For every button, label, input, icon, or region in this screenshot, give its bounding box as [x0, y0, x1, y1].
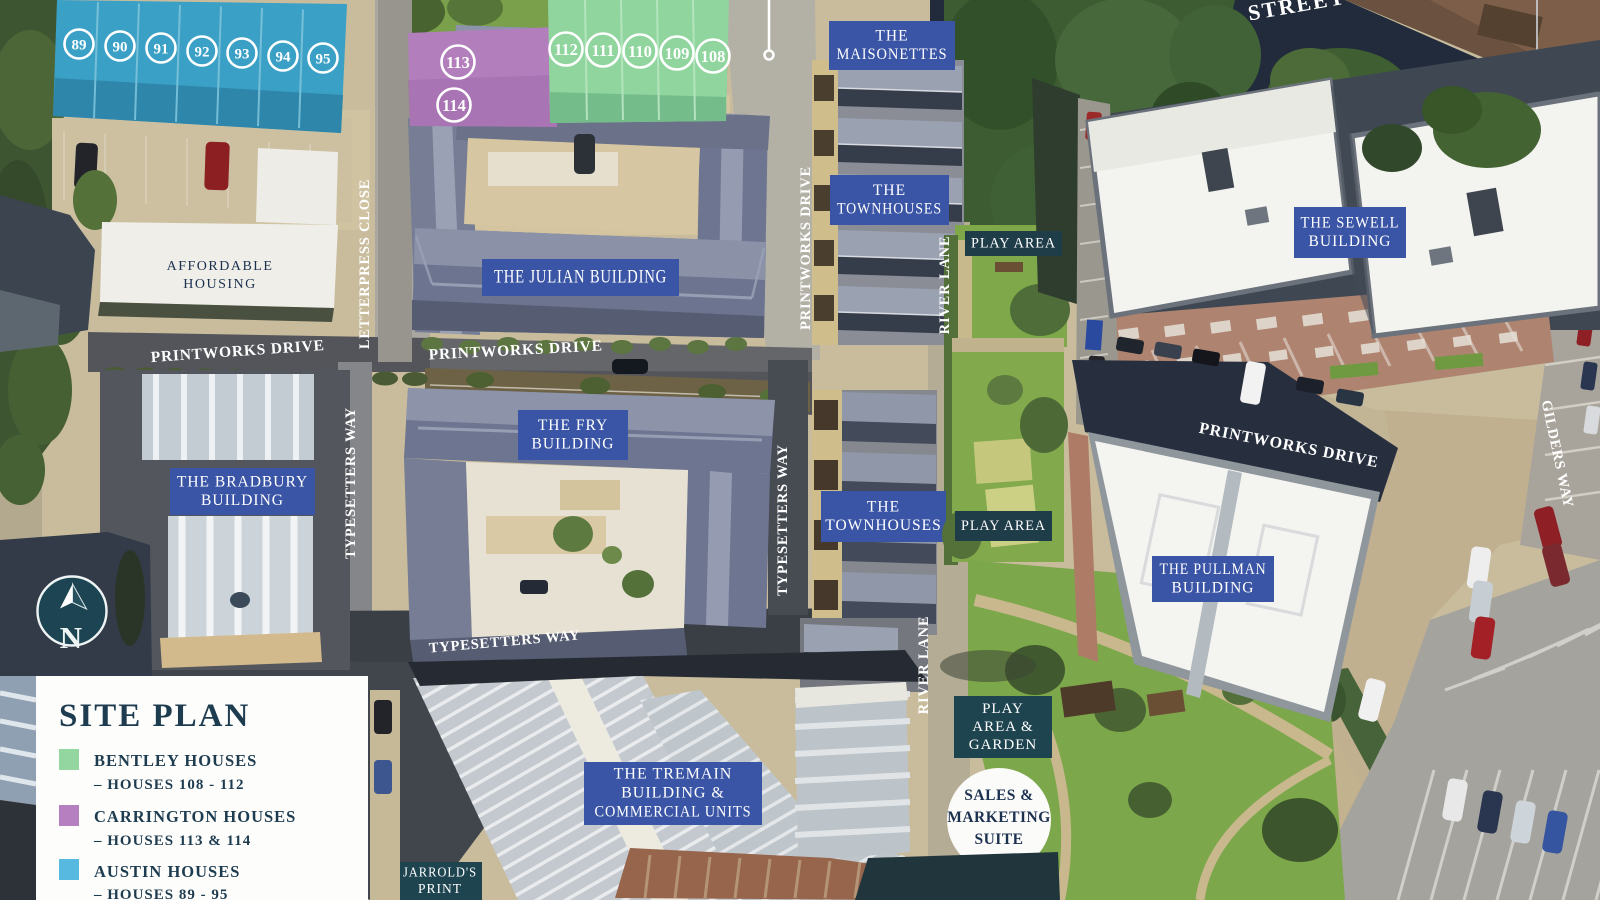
svg-text:AFFORDABLE: AFFORDABLE [167, 259, 274, 274]
svg-text:92: 92 [195, 44, 210, 60]
svg-text:– HOUSES 113 & 114: – HOUSES 113 & 114 [93, 833, 251, 849]
svg-text:THE: THE [867, 498, 900, 515]
svg-text:AUSTIN HOUSES: AUSTIN HOUSES [94, 862, 240, 881]
svg-text:94: 94 [276, 49, 292, 65]
svg-text:AREA &: AREA & [972, 719, 1033, 735]
svg-text:TOWNHOUSES: TOWNHOUSES [837, 200, 942, 217]
svg-text:SITE PLAN: SITE PLAN [59, 698, 250, 734]
svg-text:– HOUSES 108 - 112: – HOUSES 108 - 112 [93, 777, 245, 793]
svg-text:PLAY: PLAY [982, 701, 1024, 717]
svg-text:93: 93 [235, 46, 250, 62]
svg-text:109: 109 [665, 44, 690, 63]
svg-text:RIVER LANE: RIVER LANE [916, 616, 932, 715]
svg-text:– HOUSES 89 - 95: – HOUSES 89 - 95 [93, 887, 228, 900]
svg-text:PRINT: PRINT [418, 881, 462, 896]
svg-text:MAISONETTES: MAISONETTES [837, 46, 948, 63]
svg-text:90: 90 [113, 39, 128, 55]
svg-text:TYPESETTERS WAY: TYPESETTERS WAY [343, 407, 359, 559]
svg-text:TYPESETTERS WAY: TYPESETTERS WAY [775, 444, 791, 596]
svg-text:MARKETING: MARKETING [947, 809, 1051, 826]
svg-text:THE JULIAN BUILDING: THE JULIAN BUILDING [494, 266, 667, 287]
svg-text:89: 89 [72, 37, 87, 53]
svg-text:SUITE: SUITE [974, 831, 1023, 848]
svg-text:108: 108 [701, 47, 726, 66]
svg-text:THE: THE [875, 27, 908, 44]
svg-text:111: 111 [592, 41, 615, 60]
svg-text:114: 114 [442, 96, 466, 115]
svg-text:BUILDING &: BUILDING & [621, 785, 725, 802]
svg-text:JARROLD'S: JARROLD'S [403, 864, 477, 879]
svg-text:N: N [60, 620, 82, 655]
svg-text:LETTERPRESS CLOSE: LETTERPRESS CLOSE [357, 179, 373, 349]
svg-text:PLAY AREA: PLAY AREA [961, 518, 1046, 534]
svg-text:THE: THE [873, 182, 906, 199]
svg-text:THE TREMAIN: THE TREMAIN [614, 766, 733, 783]
svg-text:RIVER LANE: RIVER LANE [937, 236, 953, 335]
svg-text:SALES &: SALES & [964, 787, 1033, 804]
svg-text:COMMERCIAL UNITS: COMMERCIAL UNITS [595, 804, 752, 821]
svg-text:PRINTWORKS DRIVE: PRINTWORKS DRIVE [798, 166, 814, 330]
svg-text:BUILDING: BUILDING [532, 435, 615, 452]
svg-text:THE BRADBURY: THE BRADBURY [177, 473, 308, 490]
svg-text:BUILDING: BUILDING [1172, 579, 1255, 596]
svg-text:PLAY AREA: PLAY AREA [971, 235, 1056, 251]
svg-text:95: 95 [316, 51, 331, 67]
svg-text:CARRINGTON HOUSES: CARRINGTON HOUSES [94, 807, 296, 826]
svg-text:BENTLEY HOUSES: BENTLEY HOUSES [94, 751, 257, 770]
svg-text:113: 113 [446, 53, 470, 72]
svg-text:110: 110 [628, 42, 652, 61]
svg-text:THE FRY: THE FRY [538, 417, 608, 434]
svg-text:THE SEWELL: THE SEWELL [1301, 214, 1400, 231]
svg-text:112: 112 [554, 40, 578, 59]
svg-text:GARDEN: GARDEN [969, 737, 1038, 753]
svg-text:91: 91 [154, 41, 169, 57]
svg-text:HOUSING: HOUSING [183, 277, 257, 292]
svg-text:TOWNHOUSES: TOWNHOUSES [825, 517, 942, 534]
svg-text:BUILDING: BUILDING [201, 492, 284, 509]
svg-text:THE PULLMAN: THE PULLMAN [1160, 561, 1267, 578]
svg-text:BUILDING: BUILDING [1309, 233, 1392, 250]
